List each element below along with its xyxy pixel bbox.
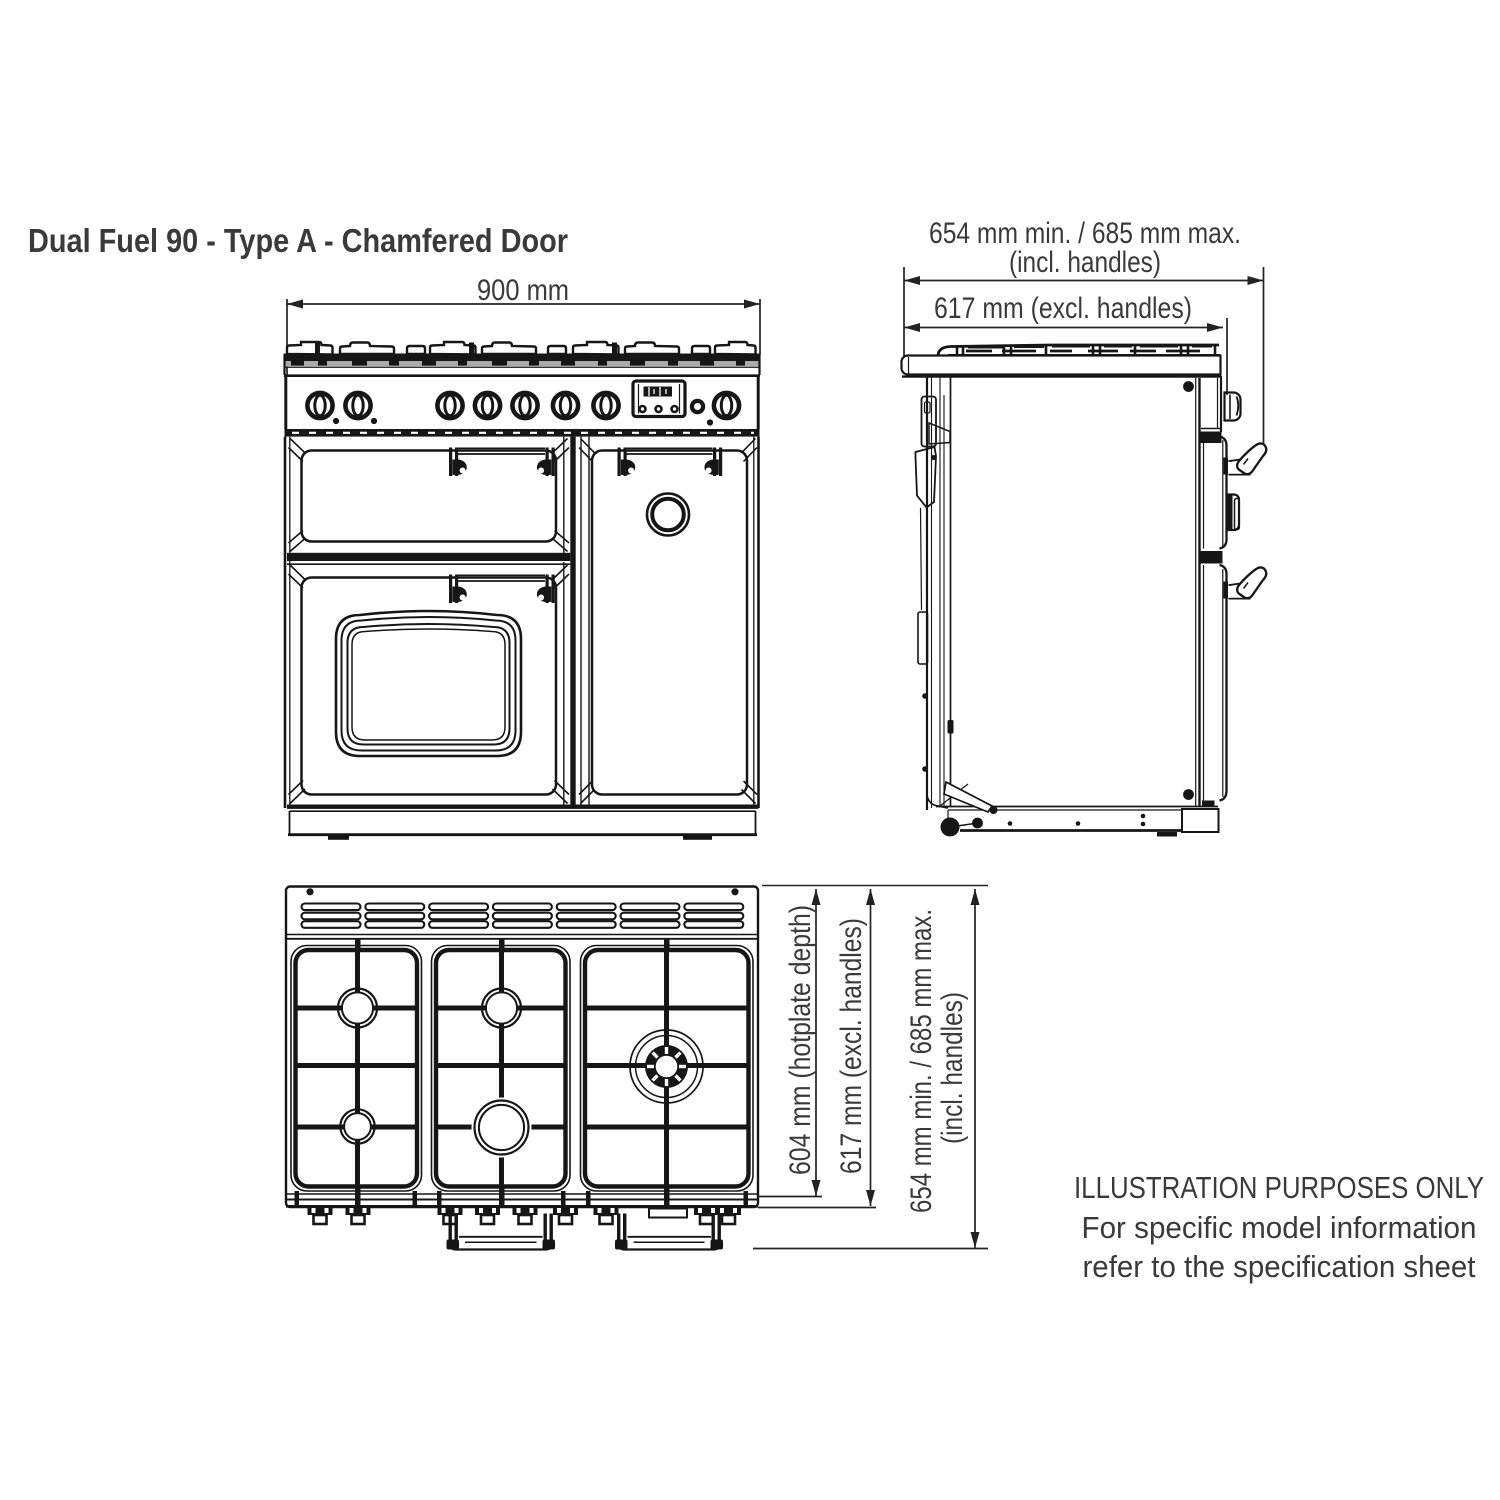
svg-text:654 mm min. / 685 mm max.: 654 mm min. / 685 mm max. [905,909,938,1213]
svg-text:refer to the specification she: refer to the specification sheet [1083,1249,1476,1284]
svg-text:(incl. handles): (incl. handles) [1009,246,1161,279]
svg-text:(incl. handles): (incl. handles) [936,992,969,1144]
svg-text:Dual Fuel 90 - Type A - Chamfe: Dual Fuel 90 - Type A - Chamfered Door [28,222,568,259]
svg-text:For specific model information: For specific model information [1082,1210,1477,1245]
svg-text:617 mm (excl. handles): 617 mm (excl. handles) [934,292,1192,325]
svg-text:604 mm (hotplate depth): 604 mm (hotplate depth) [784,905,817,1175]
svg-text:617 mm (excl. handles): 617 mm (excl. handles) [835,918,868,1174]
svg-text:ILLUSTRATION PURPOSES ONLY: ILLUSTRATION PURPOSES ONLY [1074,1170,1484,1205]
svg-text:900 mm: 900 mm [477,274,569,307]
